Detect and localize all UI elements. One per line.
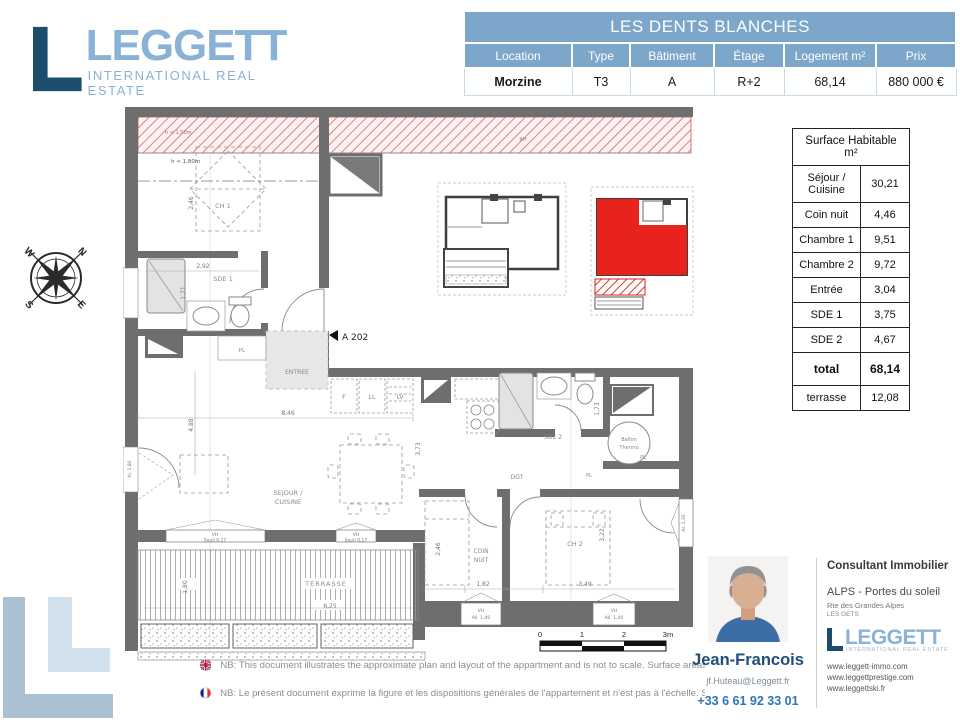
win-seuil-1: Seuil 0,17	[204, 538, 227, 544]
ch1-furniture	[190, 147, 266, 231]
scale-0: 0	[538, 630, 542, 639]
win-al180: Al. 1,80	[127, 460, 133, 477]
row-entree-label: Entrée	[793, 278, 861, 303]
label-coin2: NUIT	[474, 557, 489, 564]
label-sde2: SDE 2	[544, 434, 562, 441]
scale-2: 2	[622, 630, 626, 639]
dim-terrh: 1,80	[182, 580, 189, 594]
note-fr-row: NB: Le présent document exprime la figur…	[200, 683, 705, 703]
low-ceiling-zone	[138, 117, 691, 153]
label-washer: LL	[368, 393, 376, 401]
compass-w: W	[22, 246, 37, 261]
divider	[816, 558, 817, 708]
consultant-title: Consultant Immobilier	[827, 560, 958, 572]
win-vh-2: VH	[353, 532, 359, 538]
consultant-address1: Rte des Grandes Alpes	[827, 601, 958, 610]
label-rh: RH	[519, 137, 526, 143]
row-ch2-value: 9,72	[861, 253, 910, 278]
consultant-phone[interactable]: +33 6 61 92 33 01	[692, 694, 804, 708]
row-sde1-value: 3,75	[861, 303, 910, 328]
note-en: NB: This document illustrates the approx…	[220, 660, 705, 671]
consultant-logo: LEGGETT INTERNATIONAL REAL ESTATE	[827, 628, 958, 653]
label-sde1: SDE 1	[213, 275, 232, 283]
leggett-watermark	[0, 590, 130, 720]
val-prix: 880 000 €	[876, 68, 956, 95]
low-ceiling-label: h < 1,80m	[171, 159, 200, 165]
hob-icon	[471, 405, 494, 429]
val-type: T3	[572, 68, 630, 95]
win-all-2: All. 1,00	[605, 615, 624, 621]
leggett-logo: LEGGETT INTERNATIONAL REAL ESTATE	[33, 26, 313, 106]
dim-coinh: 2,46	[435, 542, 442, 556]
key-plan-highlight	[591, 187, 693, 315]
kitchen-units	[331, 379, 499, 433]
scale-1: 1	[580, 630, 584, 639]
dim-sejourw: 8,46	[281, 410, 295, 417]
note-fr: NB: Le présent document exprime la figur…	[220, 688, 705, 699]
col-prix: Prix	[876, 43, 956, 68]
label-pl2: PL	[640, 455, 646, 461]
row-terrasse-value: 12,08	[861, 386, 910, 411]
row-total-value: 68,14	[861, 353, 910, 386]
row-ch1-value: 9,51	[861, 228, 910, 253]
dim-sde2h: 1,73	[594, 402, 601, 416]
entrance-arrow-icon	[329, 330, 338, 341]
label-pl3: PL	[586, 473, 592, 479]
label-ballon1: Ballon	[621, 437, 637, 443]
dim-sde1w: 2,92	[196, 263, 210, 270]
fr-flag-icon	[200, 686, 211, 700]
win-al130: Al. 1,30	[681, 514, 687, 531]
row-sejour-label: Séjour / Cuisine	[793, 166, 861, 203]
col-location: Location	[464, 43, 572, 68]
val-logement: 68,14	[784, 68, 876, 95]
scale-3m: 3m	[663, 630, 673, 639]
low-ceiling-band-label: h < 1,50m	[165, 130, 192, 136]
dim-terrw: 6,25	[323, 603, 337, 610]
col-type: Type	[572, 43, 630, 68]
logo-word: LEGGETT	[86, 26, 313, 66]
compass-rose: N E S W	[14, 236, 98, 320]
compass-s: S	[23, 299, 36, 312]
dim-ch1: 2,46	[188, 196, 195, 210]
dim-sejourh: 4,88	[188, 418, 195, 432]
note-en-row: NB: This document illustrates the approx…	[200, 655, 705, 675]
property-title: LES DENTS BLANCHES	[464, 11, 956, 43]
win-vh-3: VH	[478, 608, 484, 614]
logo-tagline: INTERNATIONAL REAL ESTATE	[88, 68, 313, 98]
row-ch1-label: Chambre 1	[793, 228, 861, 253]
col-batiment: Bâtiment	[630, 43, 714, 68]
terrasse-deck	[138, 550, 418, 620]
uk-flag-icon	[200, 658, 211, 672]
consultant-address2: LES GETS	[827, 611, 958, 618]
staircase-block	[329, 155, 381, 195]
row-sde2-value: 4,67	[861, 328, 910, 353]
consultant-region: ALPS - Portes du soleil	[827, 586, 958, 598]
consultant-card: Jean-Francois jf.Huteau@Leggett.fr +33 6…	[692, 556, 958, 718]
entree-zone	[266, 331, 328, 389]
compass-e: E	[75, 299, 88, 312]
consultant-photo	[708, 556, 788, 642]
label-dgt: DGT	[511, 474, 524, 481]
win-vh-1: VH	[212, 532, 218, 538]
dim-coinw: 1,82	[476, 581, 490, 588]
label-sejour2: CUISINE	[275, 498, 301, 506]
leggett-l-mark	[33, 26, 82, 92]
label-ballon2: Thermo	[618, 445, 638, 451]
label-ch2: CH 2	[567, 540, 583, 548]
floor-plan: A 202 CH 1 SDE 1 PL ENTREE SEJOUR / CUIS…	[123, 103, 708, 668]
win-seuil-2: Seuil 0,17	[345, 538, 368, 544]
label-coin1: COIN	[473, 548, 488, 555]
row-sde2-label: SDE 2	[793, 328, 861, 353]
kitchen-shaft	[421, 377, 451, 403]
sde2-fixtures	[499, 373, 595, 429]
consultant-name: Jean-Francois	[692, 651, 804, 670]
row-ch2-label: Chambre 2	[793, 253, 861, 278]
website-prestige[interactable]: www.leggettprestige.com	[827, 672, 958, 683]
col-etage: Étage	[714, 43, 784, 68]
label-ch1: CH 1	[215, 202, 231, 210]
website-immo[interactable]: www.leggett-immo.com	[827, 661, 958, 672]
row-coinnuit-label: Coin nuit	[793, 203, 861, 228]
surface-table: Surface Habitable m² Séjour / Cuisine30,…	[792, 128, 910, 411]
row-total-label: total	[793, 353, 861, 386]
label-dishwasher: LV	[396, 393, 404, 401]
label-pl1: PL	[239, 348, 246, 354]
val-batiment: A	[630, 68, 714, 95]
label-entree: ENTREE	[285, 369, 309, 376]
win-vh-4: VH	[611, 608, 617, 614]
dim-sde1h: 1,71	[180, 286, 187, 300]
consultant-logo-tagline: INTERNATIONAL REAL ESTATE	[846, 647, 949, 653]
dim-ch2w: 3,49	[578, 581, 592, 588]
row-coinnuit-value: 4,46	[861, 203, 910, 228]
win-all-1: All. 1,00	[472, 615, 491, 621]
row-terrasse-label: terrasse	[793, 386, 861, 411]
leggett-l-mark-small	[827, 628, 843, 651]
label-sejour1: SEJOUR /	[274, 489, 304, 497]
consultant-email[interactable]: jf.Huteau@Leggett.fr	[692, 676, 804, 686]
row-sejour-value: 30,21	[861, 166, 910, 203]
val-etage: R+2	[714, 68, 784, 95]
scale-bar: 0 1 2 3m	[538, 630, 673, 651]
dim-sejourd: 3,73	[415, 442, 422, 456]
key-plan-building	[438, 183, 566, 295]
duct-block	[611, 385, 653, 415]
label-terrasse: TERRASSE	[304, 580, 347, 588]
col-logement: Logement m²	[784, 43, 876, 68]
consultant-logo-word: LEGGETT	[845, 628, 949, 647]
label-fridge: F	[342, 393, 346, 401]
row-entree-value: 3,04	[861, 278, 910, 303]
terrace-highlight	[595, 279, 645, 295]
property-table: LES DENTS BLANCHES Location Type Bâtimen…	[463, 10, 957, 96]
row-sde1-label: SDE 1	[793, 303, 861, 328]
website-ski[interactable]: www.leggettski.fr	[827, 683, 958, 694]
dim-ch2h: 3,22	[599, 528, 606, 542]
val-location: Morzine	[464, 68, 572, 95]
surface-header: Surface Habitable m²	[793, 129, 910, 166]
unit-label: A 202	[342, 333, 368, 343]
